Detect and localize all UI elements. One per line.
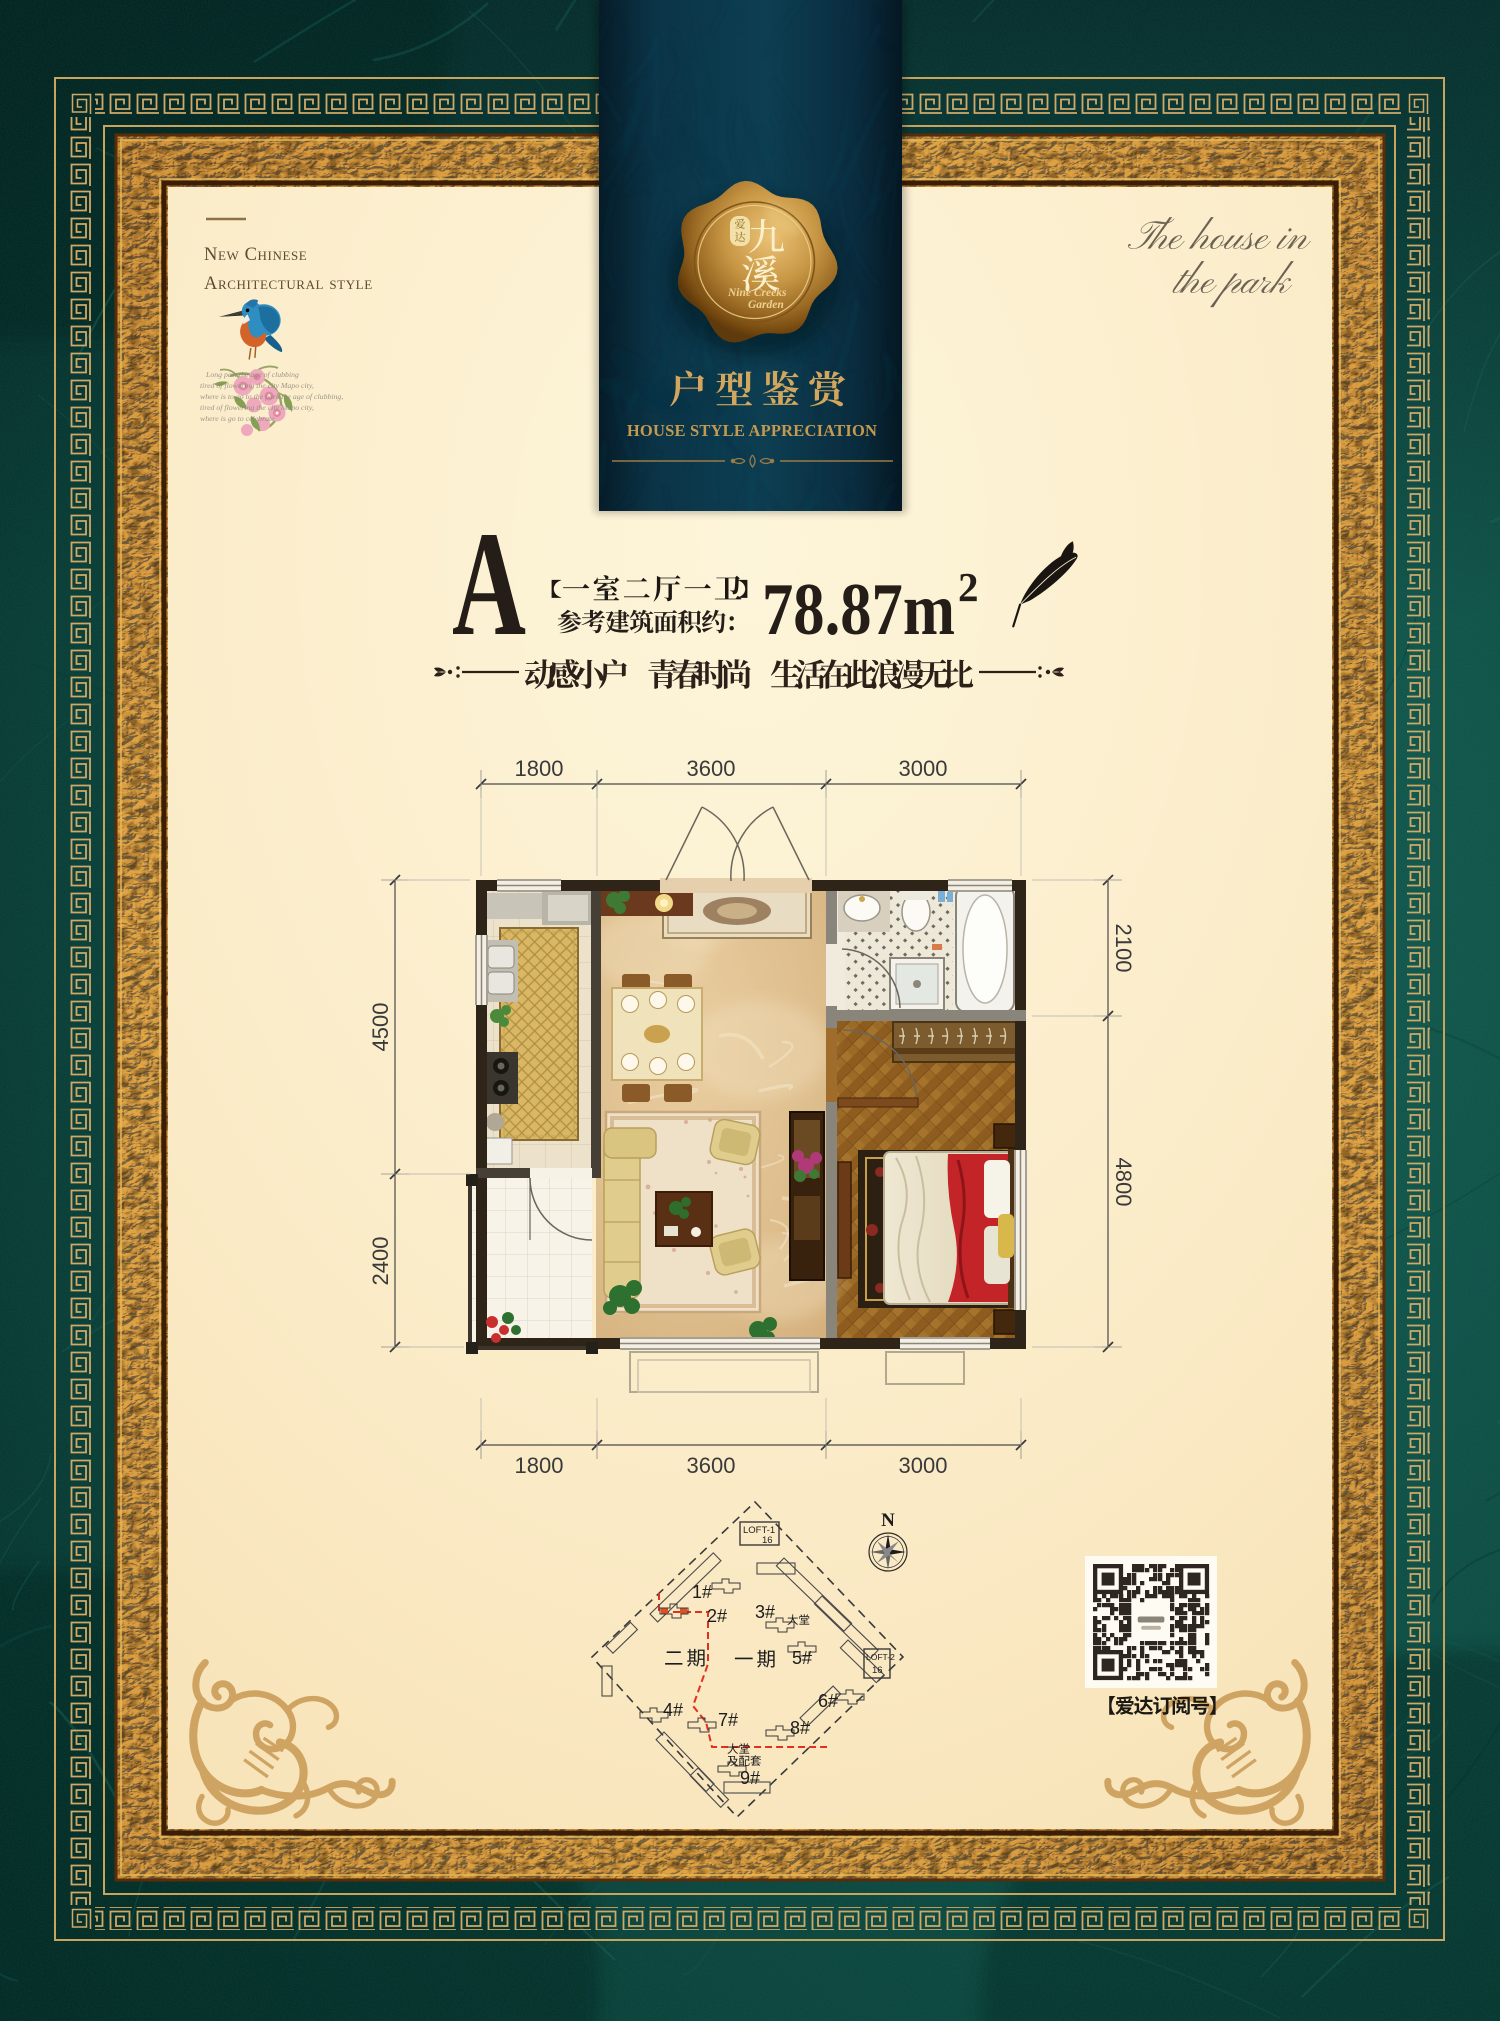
svg-text:1800: 1800: [515, 1453, 564, 1478]
svg-text:Architectural style: Architectural style: [204, 274, 373, 294]
svg-text:3000: 3000: [899, 1453, 948, 1478]
svg-text:New Chinese: New Chinese: [204, 245, 307, 265]
svg-text:16: 16: [762, 1535, 773, 1546]
svg-text:3600: 3600: [687, 1453, 736, 1478]
svg-text:HOUSE STYLE APPRECIATION: HOUSE STYLE APPRECIATION: [627, 421, 877, 440]
svg-text:78.87m: 78.87m: [762, 569, 955, 651]
svg-text:tired of flowering the city Ma: tired of flowering the city Mapo city,: [200, 381, 314, 390]
svg-text:A: A: [452, 501, 526, 667]
svg-text:2: 2: [958, 564, 979, 610]
svg-text:3600: 3600: [687, 756, 736, 781]
svg-text:16: 16: [872, 1665, 883, 1676]
svg-text:2400: 2400: [368, 1237, 393, 1286]
svg-text:Garden: Garden: [748, 299, 784, 311]
svg-text:2100: 2100: [1111, 924, 1136, 973]
svg-text:4500: 4500: [368, 1003, 393, 1052]
svg-text:5#: 5#: [792, 1648, 812, 1668]
svg-text:4800: 4800: [1111, 1158, 1136, 1207]
svg-text:3#: 3#: [755, 1602, 775, 1622]
svg-text:N: N: [881, 1510, 895, 1531]
svg-text:where is go to celebrate: where is go to celebrate: [200, 414, 275, 423]
svg-text:LOFT-2: LOFT-2: [866, 1652, 895, 1662]
svg-text:9#: 9#: [740, 1768, 760, 1788]
svg-text:7#: 7#: [718, 1710, 738, 1730]
svg-text:Nine Creeks: Nine Creeks: [727, 287, 787, 299]
svg-text:Long past the age of clubbing: Long past the age of clubbing: [205, 370, 299, 379]
svg-text:tired of flowering the city Ma: tired of flowering the city Mapo city,: [200, 403, 314, 412]
svg-text:6#: 6#: [818, 1691, 838, 1711]
svg-text:1800: 1800: [515, 756, 564, 781]
svg-text:2#: 2#: [707, 1606, 727, 1626]
svg-text:1#: 1#: [692, 1582, 712, 1602]
svg-text:3000: 3000: [899, 756, 948, 781]
svg-text:where is to go to the park the: where is to go to the park the age of cl…: [200, 392, 343, 401]
svg-text:4#: 4#: [663, 1700, 683, 1720]
svg-text:8#: 8#: [790, 1718, 810, 1738]
